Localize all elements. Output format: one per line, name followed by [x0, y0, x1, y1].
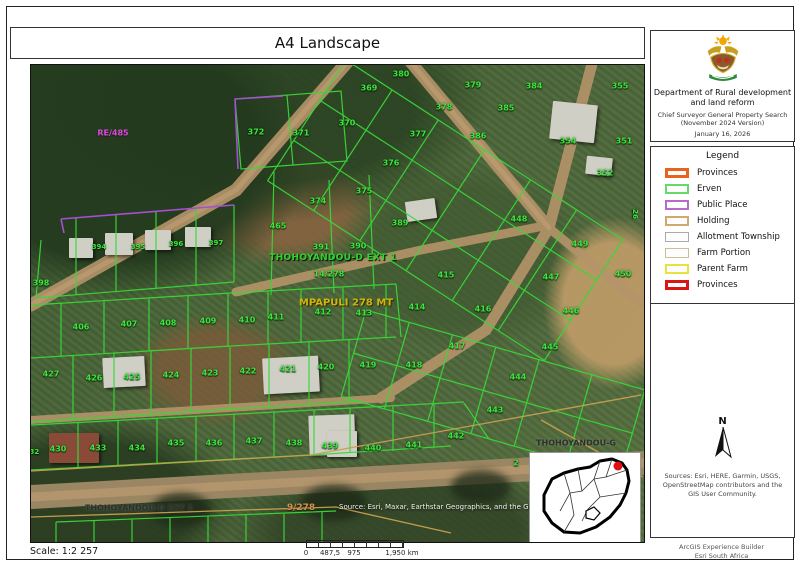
legend-swatch — [665, 264, 689, 274]
legend-item: Provinces — [665, 167, 794, 179]
parcel-label: 427 — [43, 370, 60, 379]
parcel-label: 443 — [487, 406, 504, 415]
parcel-label: 412 — [315, 308, 332, 317]
footer-credit: ArcGIS Experience Builder Esri South Afr… — [650, 543, 793, 561]
building — [102, 356, 146, 388]
parcel-label: 372 — [248, 128, 265, 137]
south-africa-outline — [530, 453, 640, 543]
parcel-label: 26 — [631, 209, 639, 219]
building — [327, 431, 357, 457]
legend-item: Parent Farm — [665, 263, 794, 275]
legend-item: Holding — [665, 215, 794, 227]
parcel-label: 374 — [310, 197, 327, 206]
tree-shadow — [576, 457, 632, 489]
legend-item: Provinces — [665, 279, 794, 291]
parcel-label: 391 — [313, 243, 330, 252]
legend-swatch — [665, 280, 689, 290]
legend-item-label: Holding — [697, 216, 730, 226]
parcel-label: 369 — [361, 84, 378, 93]
north-arrow: N — [651, 416, 794, 463]
parcel-label: 394 — [92, 243, 107, 251]
parcel-label: 433 — [90, 444, 107, 453]
parcel-label: 430 — [50, 445, 67, 454]
parcel-label: 351 — [616, 137, 633, 146]
legend-item-label: Farm Portion — [697, 248, 750, 258]
building — [549, 101, 598, 143]
parcel-label: 432 — [30, 448, 39, 456]
title-box: A4 Landscape — [10, 27, 645, 59]
tree-shadow — [151, 493, 211, 527]
legend-swatch — [665, 200, 689, 210]
imagery-attribution: Source: Esri, Maxar, Earthstar Geographi… — [339, 503, 550, 511]
parcel-label: 419 — [360, 361, 377, 370]
township-label: THOHOYANDOU-D EXT 1 — [269, 253, 396, 263]
parcel-label: 355 — [612, 82, 629, 91]
sources-text: Sources: Esri, HERE, Garmin, USGS, OpenS… — [659, 472, 786, 498]
parcel-label: 386 — [470, 132, 487, 141]
parcel-lines-layer — [31, 65, 644, 542]
parcel-label: 414 — [409, 303, 426, 312]
public-place-label: RE/485 — [97, 129, 128, 138]
legend-title: Legend — [651, 151, 794, 161]
parcel-label: 415 — [438, 271, 455, 280]
scalebar-label: 975 — [347, 549, 360, 557]
scale-text: Scale: 1:2 257 — [30, 546, 98, 557]
legend-swatch — [665, 248, 689, 258]
parcel-label: 447 — [543, 273, 560, 282]
building — [105, 233, 133, 255]
parcel-label: 434 — [129, 444, 146, 453]
parcel-label: 379 — [465, 81, 482, 90]
legend-swatch — [665, 184, 689, 194]
parcel-label: 389 — [392, 219, 409, 228]
parcel-label: 444 — [510, 373, 527, 382]
parcel-label: 385 — [498, 104, 515, 113]
parcel-label: 375 — [356, 187, 373, 196]
parcel-label: 380 — [393, 70, 410, 79]
parcel-label: 425 — [124, 373, 141, 382]
legend-panel: Legend ProvincesErvenPublic PlaceHolding… — [650, 146, 795, 304]
parcel-label: 378 — [436, 103, 453, 112]
parcel-label: 384 — [526, 82, 543, 91]
parcel-label: 2 — [513, 459, 519, 468]
legend-swatch — [665, 216, 689, 226]
parcel-label: 424 — [163, 371, 180, 380]
coat-of-arms — [700, 34, 746, 82]
township-label-bottom: THOHOYANDOU-D EXT 1 — [85, 504, 193, 513]
parcel-label: 410 — [239, 316, 256, 325]
parcel-label: 420 — [318, 363, 335, 372]
scalebar-label: 1,950 km — [385, 549, 418, 557]
parcel-label: 352 — [597, 169, 614, 178]
parcel-label: 422 — [240, 367, 257, 376]
parcel-label: 390 — [350, 242, 367, 251]
parcel-label: 437 — [246, 437, 263, 446]
parcel-label: 370 — [339, 119, 356, 128]
legend-items: ProvincesErvenPublic PlaceHoldingAllotme… — [651, 167, 794, 291]
parcel-label: 409 — [200, 317, 217, 326]
parcel-label: 435 — [168, 439, 185, 448]
township-label-right: THOHOYANDOU-G — [536, 439, 616, 448]
legend-item-label: Allotment Township — [697, 232, 780, 242]
scalebar-label: 487,5 — [320, 549, 340, 557]
parcel-label: 395 — [131, 243, 146, 251]
map-labels: 3803693793843553783853703723713773863543… — [31, 65, 644, 542]
parcel-label: 376 — [383, 159, 400, 168]
scalebar-bar — [306, 540, 404, 548]
legend-swatch — [665, 168, 689, 178]
parcel-label: 418 — [406, 361, 423, 370]
parcel-label: 398 — [33, 279, 50, 288]
building — [262, 356, 320, 395]
parcel-label: 440 — [365, 444, 382, 453]
parcel-label: 446 — [563, 307, 580, 316]
misc-panel: N Sources: Esri, HERE, Garmin, USGS, Ope… — [650, 303, 795, 538]
building — [308, 414, 355, 456]
parcel-label: 445 — [542, 343, 559, 352]
parcel-label: 354 — [560, 137, 577, 146]
locator-inset — [529, 452, 641, 543]
parcel-label: 406 — [73, 323, 90, 332]
legend-item-label: Parent Farm — [697, 264, 748, 274]
legend-item: Allotment Township — [665, 231, 794, 243]
parcel-label: 14/278 — [314, 270, 345, 279]
farm-name-label: MPAPULI 278 MT — [299, 298, 393, 309]
legend-item-label: Provinces — [697, 168, 738, 178]
parcel-label: 407 — [121, 320, 138, 329]
legend-item: Farm Portion — [665, 247, 794, 259]
tree-shadow — [301, 485, 367, 521]
parcel-label: 408 — [160, 319, 177, 328]
parcel-label: 450 — [615, 270, 632, 279]
legend-swatch — [665, 232, 689, 242]
print-layout-page: A4 Landscape — [0, 0, 800, 566]
parcel-label: 416 — [475, 305, 492, 314]
parcel-label: 426 — [86, 374, 103, 383]
parcel-label: 465 — [270, 222, 287, 231]
parcel-label: 448 — [511, 215, 528, 224]
parcel-label: 411 — [268, 313, 285, 322]
scalebar: 0487,59751,950 km — [300, 540, 460, 562]
building — [145, 230, 171, 250]
page-title: A4 Landscape — [275, 34, 380, 52]
parcel-label: 423 — [202, 369, 219, 378]
parcel-label: 449 — [572, 240, 589, 249]
report-date: January 16, 2026 — [651, 130, 794, 138]
north-arrow-icon — [712, 427, 734, 459]
north-label: N — [651, 416, 794, 427]
parcel-label: 417 — [449, 342, 466, 351]
legend-item-label: Erven — [697, 184, 722, 194]
parcel-label: 441 — [406, 441, 423, 450]
map-canvas: 3803693793843553783853703723713773863543… — [30, 64, 645, 543]
tree-shadow — [451, 470, 511, 504]
parcel-label: 438 — [286, 439, 303, 448]
building — [69, 238, 93, 258]
department-panel: Department of Rural development and land… — [650, 30, 795, 142]
parcel-label: 377 — [410, 130, 427, 139]
parcel-label: 442 — [448, 432, 465, 441]
scalebar-label: 0 — [304, 549, 308, 557]
legend-item: Erven — [665, 183, 794, 195]
parcel-label: 371 — [293, 129, 310, 138]
legend-item: Public Place — [665, 199, 794, 211]
building — [405, 198, 437, 222]
parcel-label: 436 — [206, 439, 223, 448]
report-subtitle: Chief Surveyor General Property Search (… — [651, 111, 794, 128]
parcel-label: 413 — [356, 309, 373, 318]
farm-portion-label: 9/278 — [287, 503, 315, 513]
legend-item-label: Public Place — [697, 200, 747, 210]
parcel-label: 397 — [209, 239, 224, 247]
building — [185, 227, 211, 247]
location-dot — [614, 462, 623, 471]
building — [585, 156, 613, 177]
parcel-label: 439 — [322, 442, 339, 451]
parcel-label: 421 — [280, 365, 297, 374]
building-red-roof — [49, 433, 99, 463]
parcel-label: 396 — [169, 240, 184, 248]
department-name: Department of Rural development and land… — [651, 88, 794, 108]
roads-layer — [31, 65, 644, 542]
legend-item-label: Provinces — [697, 280, 738, 290]
